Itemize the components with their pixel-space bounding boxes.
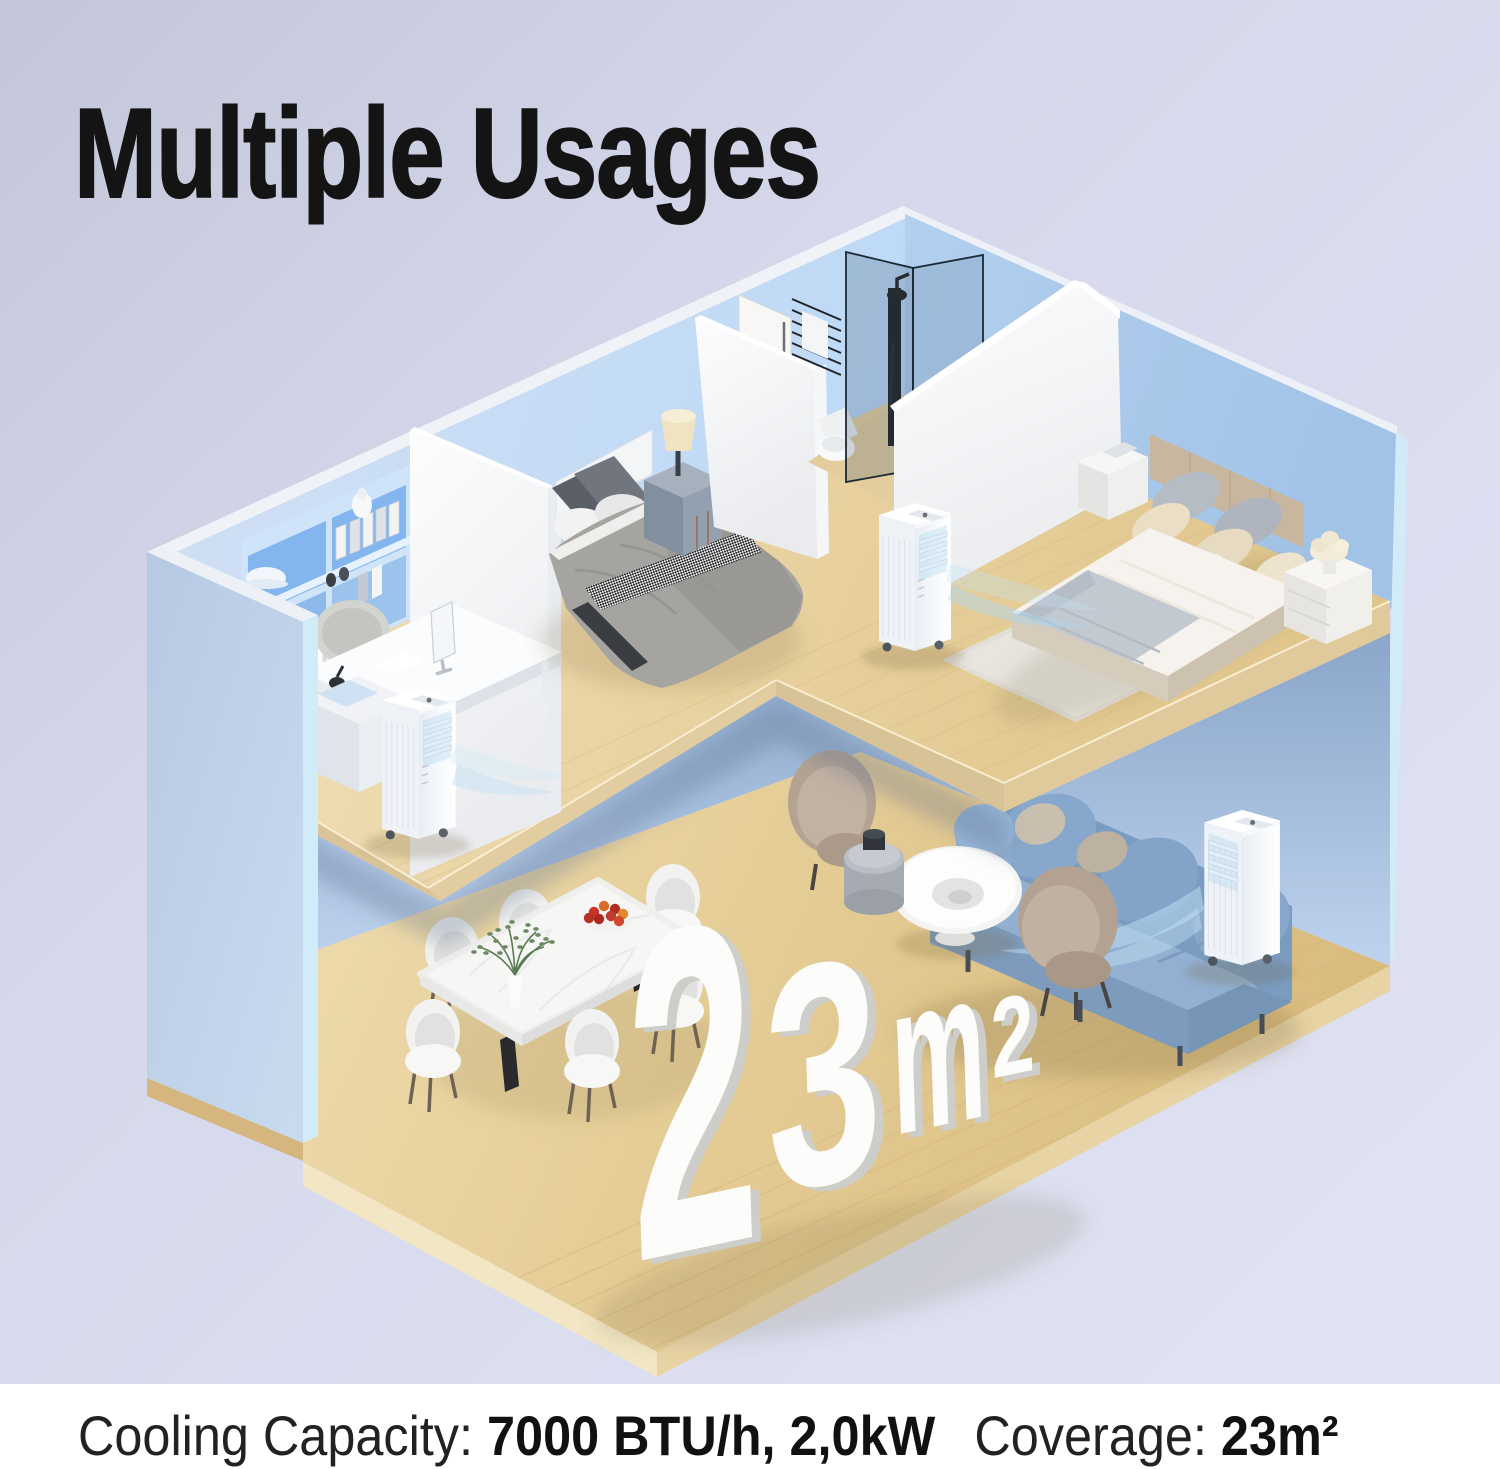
svg-text:2: 2 bbox=[619, 818, 764, 1361]
svg-text:m: m bbox=[887, 922, 989, 1182]
svg-text:2: 2 bbox=[989, 970, 1036, 1103]
svg-text:3: 3 bbox=[760, 886, 887, 1262]
